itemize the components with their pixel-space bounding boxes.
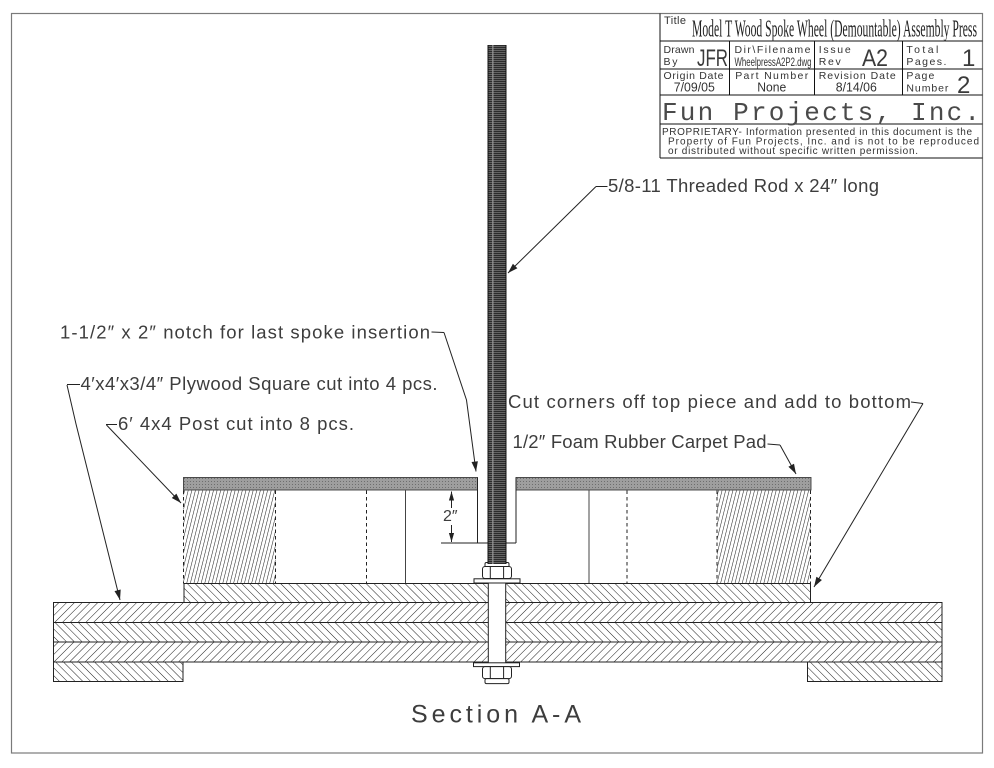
svg-text:8/14/06: 8/14/06	[836, 80, 877, 95]
svg-text:1-1/2″ x 2″ notch for last spo: 1-1/2″ x 2″ notch for last spoke inserti…	[60, 322, 430, 343]
svg-text:5/8-11 Threaded Rod x 24″ long: 5/8-11 Threaded Rod x 24″ long	[608, 175, 879, 196]
svg-text:None: None	[757, 80, 786, 95]
svg-text:1/2″ Foam Rubber Carpet Pad: 1/2″ Foam Rubber Carpet Pad	[513, 431, 767, 452]
svg-text:or distributed without specifi: or distributed without specific written …	[668, 146, 918, 157]
svg-text:Total: Total	[906, 44, 938, 56]
svg-text:Pages.: Pages.	[906, 56, 946, 68]
svg-text:Cut corners off top piece and: Cut corners off top piece and add to bot…	[508, 391, 911, 412]
svg-text:Rev: Rev	[819, 56, 842, 68]
svg-text:7/09/05: 7/09/05	[674, 80, 715, 95]
svg-text:Drawn: Drawn	[664, 44, 695, 56]
svg-text:A2: A2	[862, 45, 888, 72]
svg-text:6′ 4x4 Post cut into 8 pcs.: 6′ 4x4 Post cut into 8 pcs.	[118, 413, 354, 434]
svg-text:Dir\Filename: Dir\Filename	[735, 44, 811, 56]
svg-text:2″: 2″	[443, 508, 458, 525]
svg-text:Model T Wood Spoke Wheel (Demo: Model T Wood Spoke Wheel (Demountable) A…	[692, 17, 977, 43]
svg-text:4′x4′x3/4″ Plywood Square cut: 4′x4′x3/4″ Plywood Square cut into 4 pcs…	[81, 373, 438, 394]
svg-text:Issue: Issue	[819, 44, 851, 56]
svg-text:JFR: JFR	[697, 45, 728, 72]
svg-text:1: 1	[962, 45, 975, 72]
svg-text:Title: Title	[664, 15, 686, 27]
svg-text:Section A-A: Section A-A	[411, 701, 581, 729]
svg-text:Number: Number	[906, 83, 949, 95]
svg-text:WheelpressA2P2.dwg: WheelpressA2P2.dwg	[735, 57, 812, 69]
svg-text:2: 2	[957, 72, 970, 99]
